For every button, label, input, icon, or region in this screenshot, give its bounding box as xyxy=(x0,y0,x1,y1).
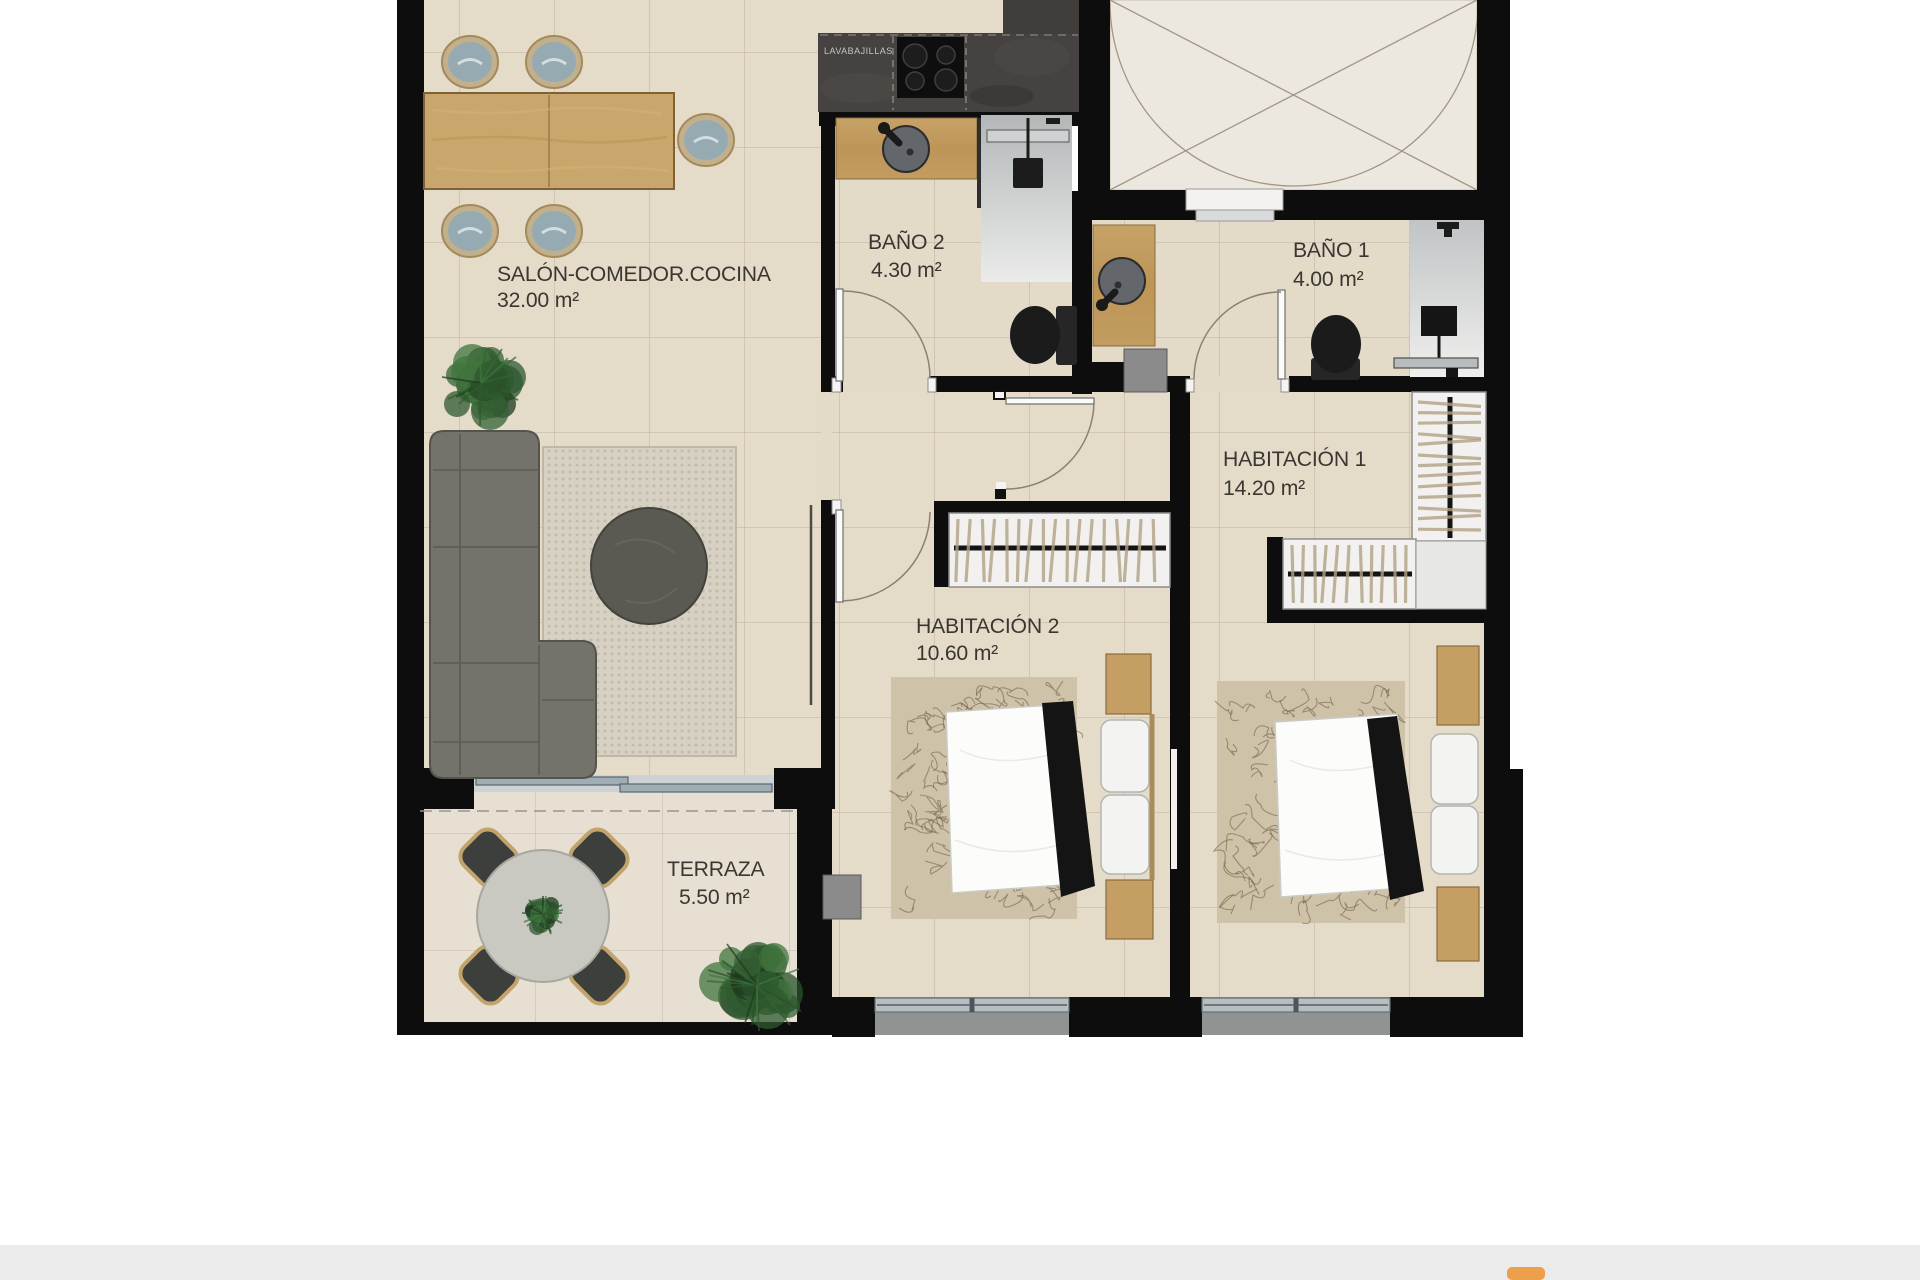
svg-text:SALÓN-COMEDOR.COCINA: SALÓN-COMEDOR.COCINA xyxy=(497,261,772,286)
svg-text:HABITACIÓN 1: HABITACIÓN 1 xyxy=(1223,446,1366,471)
svg-text:HABITACIÓN 2: HABITACIÓN 2 xyxy=(916,613,1059,638)
svg-text:14.20 m²: 14.20 m² xyxy=(1223,477,1305,500)
svg-text:BAÑO 1: BAÑO 1 xyxy=(1293,237,1370,262)
svg-text:10.60 m²: 10.60 m² xyxy=(916,642,998,665)
svg-text:5.50 m²: 5.50 m² xyxy=(679,886,750,909)
svg-text:4.30 m²: 4.30 m² xyxy=(871,259,942,282)
svg-text:LAVABAJILLAS: LAVABAJILLAS xyxy=(824,46,893,56)
svg-text:BAÑO 2: BAÑO 2 xyxy=(868,229,945,254)
svg-text:32.00 m²: 32.00 m² xyxy=(497,289,579,312)
svg-text:TERRAZA: TERRAZA xyxy=(667,858,766,881)
svg-text:4.00 m²: 4.00 m² xyxy=(1293,268,1364,291)
